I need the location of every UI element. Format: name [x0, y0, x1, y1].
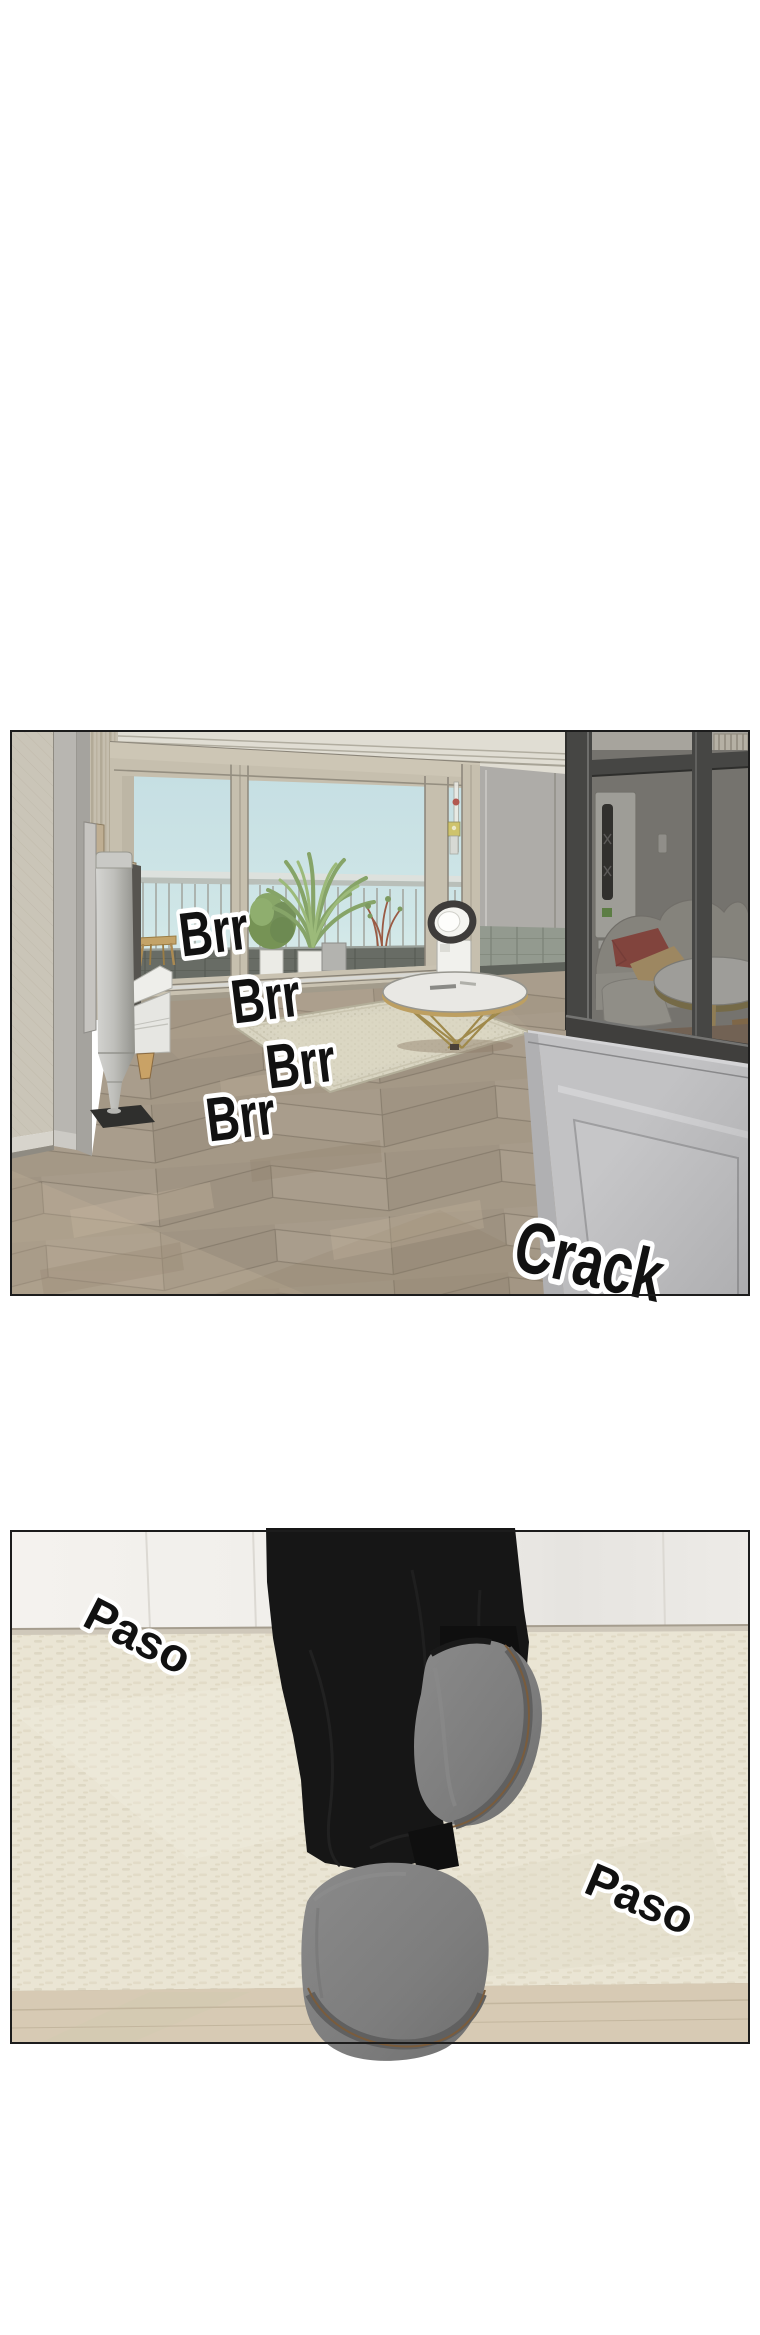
svg-text:Brr: Brr: [175, 893, 252, 970]
svg-text:Brr: Brr: [202, 1078, 279, 1155]
svg-text:Brr: Brr: [227, 960, 304, 1037]
svg-text:Brr: Brr: [262, 1025, 339, 1102]
